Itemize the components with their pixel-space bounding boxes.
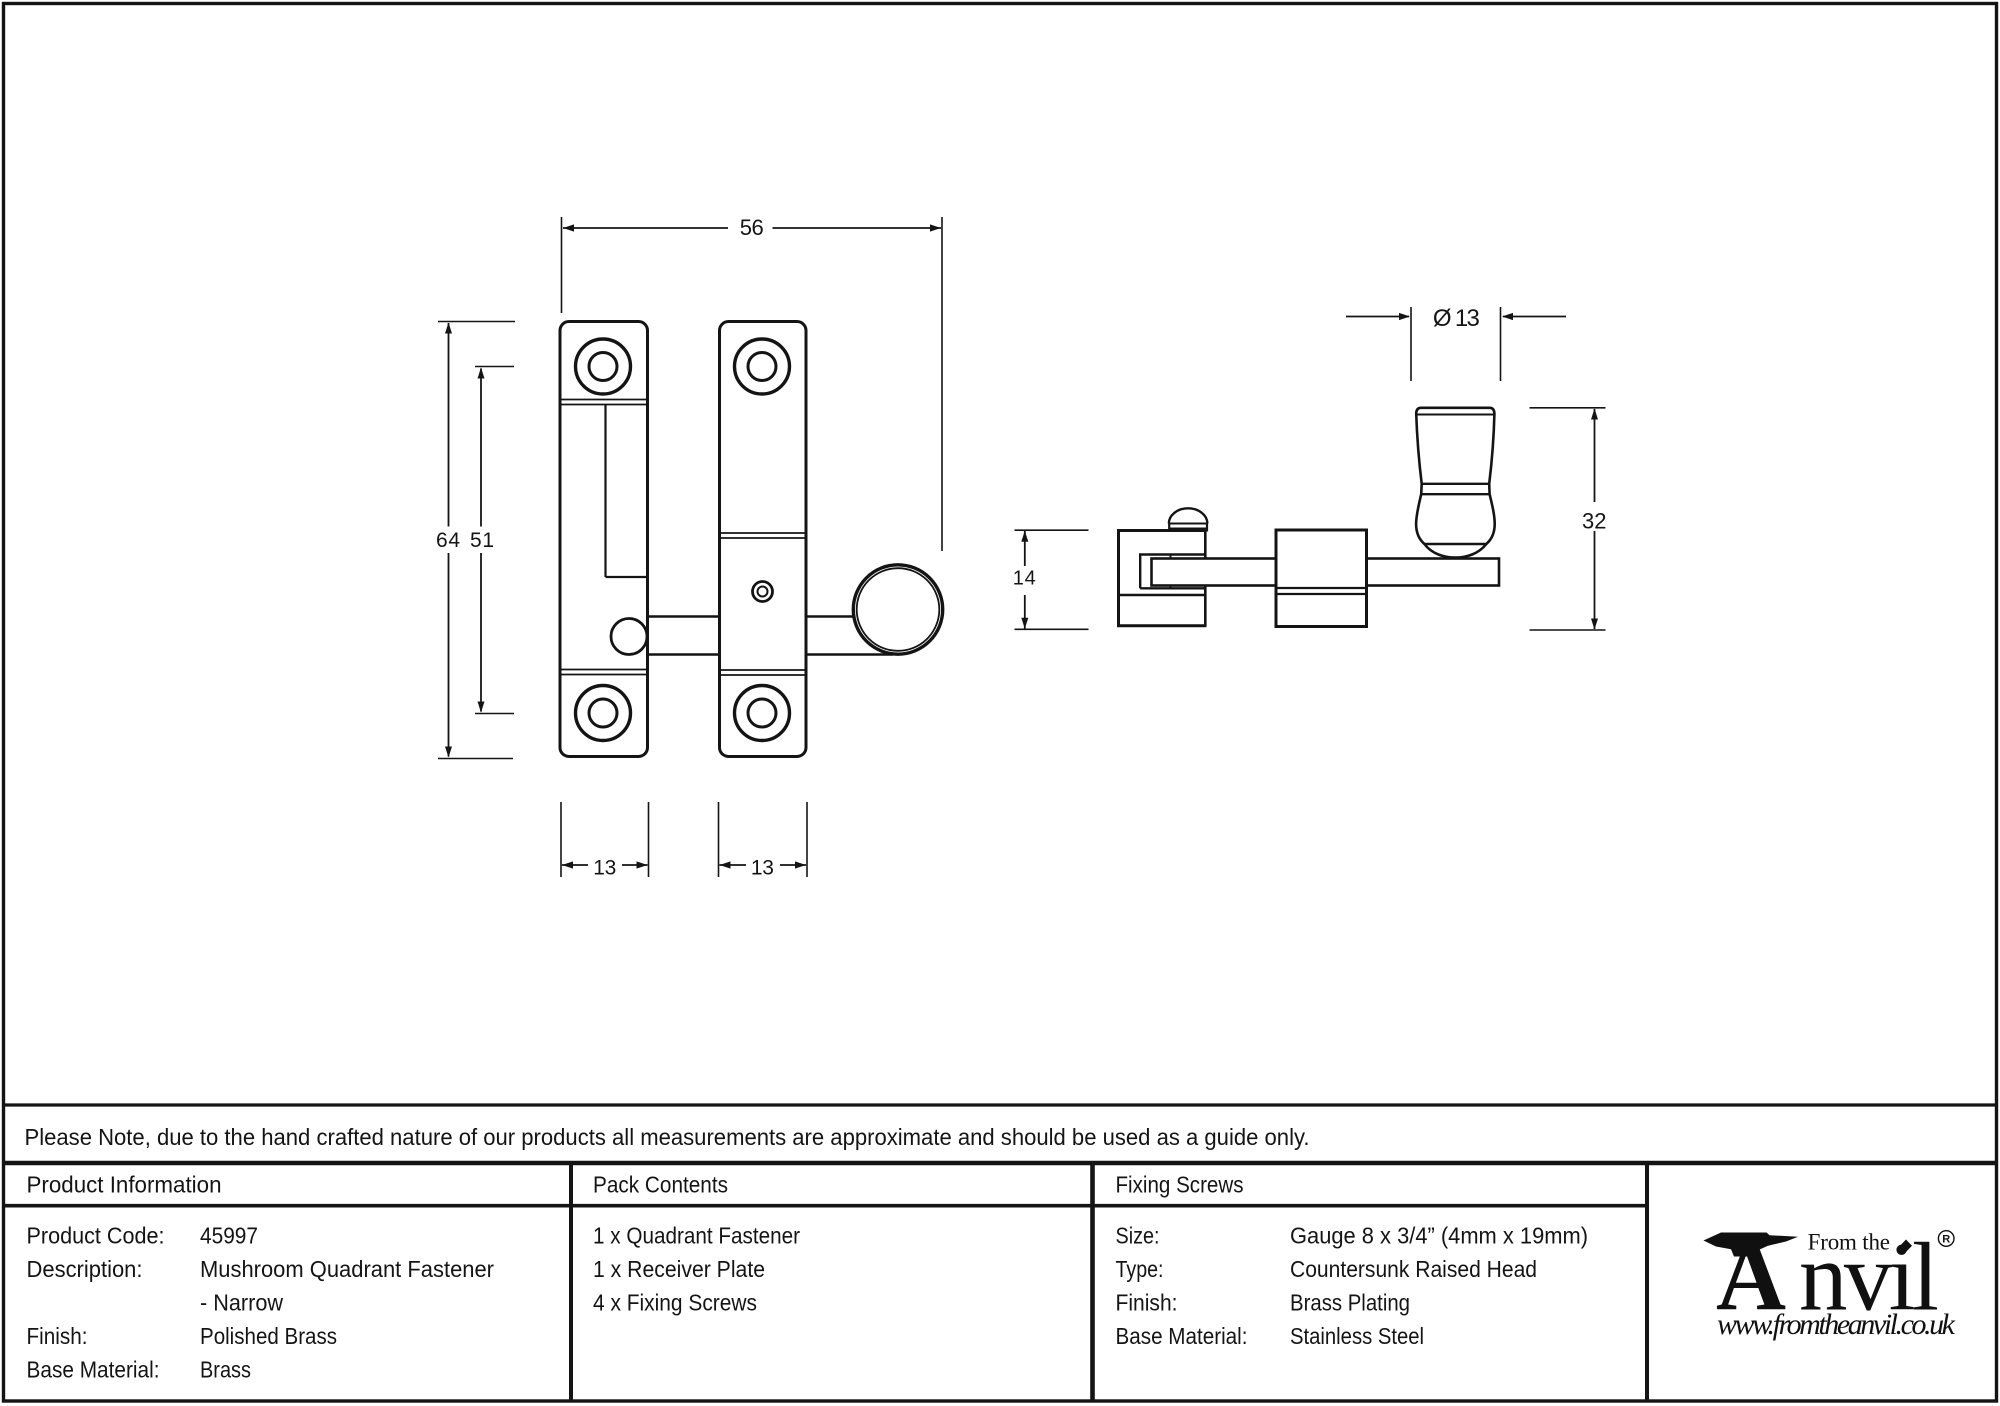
svg-text:R: R [1942, 1234, 1950, 1246]
svg-text:Base Material:: Base Material: [27, 1357, 160, 1383]
svg-text:Finish:: Finish: [27, 1323, 88, 1349]
svg-text:From the: From the [1808, 1230, 1890, 1255]
svg-text:Description:: Description: [27, 1256, 143, 1282]
svg-text:Brass: Brass [200, 1357, 251, 1383]
svg-text:Type:: Type: [1116, 1256, 1164, 1282]
svg-text:4 x Fixing Screws: 4 x Fixing Screws [593, 1290, 757, 1316]
svg-text:56: 56 [740, 215, 764, 240]
svg-text:14: 14 [1013, 568, 1036, 590]
svg-text:Fixing Screws: Fixing Screws [1116, 1172, 1244, 1198]
svg-text:Product Information: Product Information [27, 1172, 222, 1198]
svg-text:45997: 45997 [200, 1223, 258, 1249]
svg-text:Mushroom Quadrant Fastener: Mushroom Quadrant Fastener [200, 1256, 494, 1282]
svg-text:Base Material:: Base Material: [1116, 1323, 1248, 1349]
svg-text:Polished Brass: Polished Brass [200, 1323, 337, 1349]
svg-text:Finish:: Finish: [1116, 1290, 1178, 1316]
svg-text:www.fromtheanvil.co.uk: www.fromtheanvil.co.uk [1717, 1308, 1956, 1341]
svg-text:1 x Quadrant Fastener: 1 x Quadrant Fastener [593, 1223, 800, 1249]
svg-text:32: 32 [1582, 508, 1607, 533]
svg-text:51: 51 [470, 529, 494, 552]
svg-text:Ø 13: Ø 13 [1433, 305, 1480, 332]
svg-text:Please Note, due to the hand c: Please Note, due to the hand crafted nat… [25, 1124, 1310, 1150]
svg-text:13: 13 [751, 856, 774, 879]
svg-text:Brass Plating: Brass Plating [1290, 1290, 1410, 1316]
svg-text:13: 13 [593, 856, 616, 879]
svg-text:64: 64 [436, 529, 460, 552]
svg-text:Gauge 8 x 3/4” (4mm x 19mm): Gauge 8 x 3/4” (4mm x 19mm) [1290, 1223, 1588, 1249]
svg-text:1 x Receiver Plate: 1 x Receiver Plate [593, 1256, 765, 1282]
svg-text:Stainless Steel: Stainless Steel [1290, 1323, 1424, 1349]
svg-text:Pack Contents: Pack Contents [593, 1172, 728, 1198]
svg-text:Size:: Size: [1116, 1223, 1160, 1249]
svg-text:Countersunk Raised Head: Countersunk Raised Head [1290, 1256, 1537, 1282]
svg-text:Product Code:: Product Code: [27, 1223, 165, 1249]
svg-text:- Narrow: - Narrow [200, 1290, 283, 1316]
